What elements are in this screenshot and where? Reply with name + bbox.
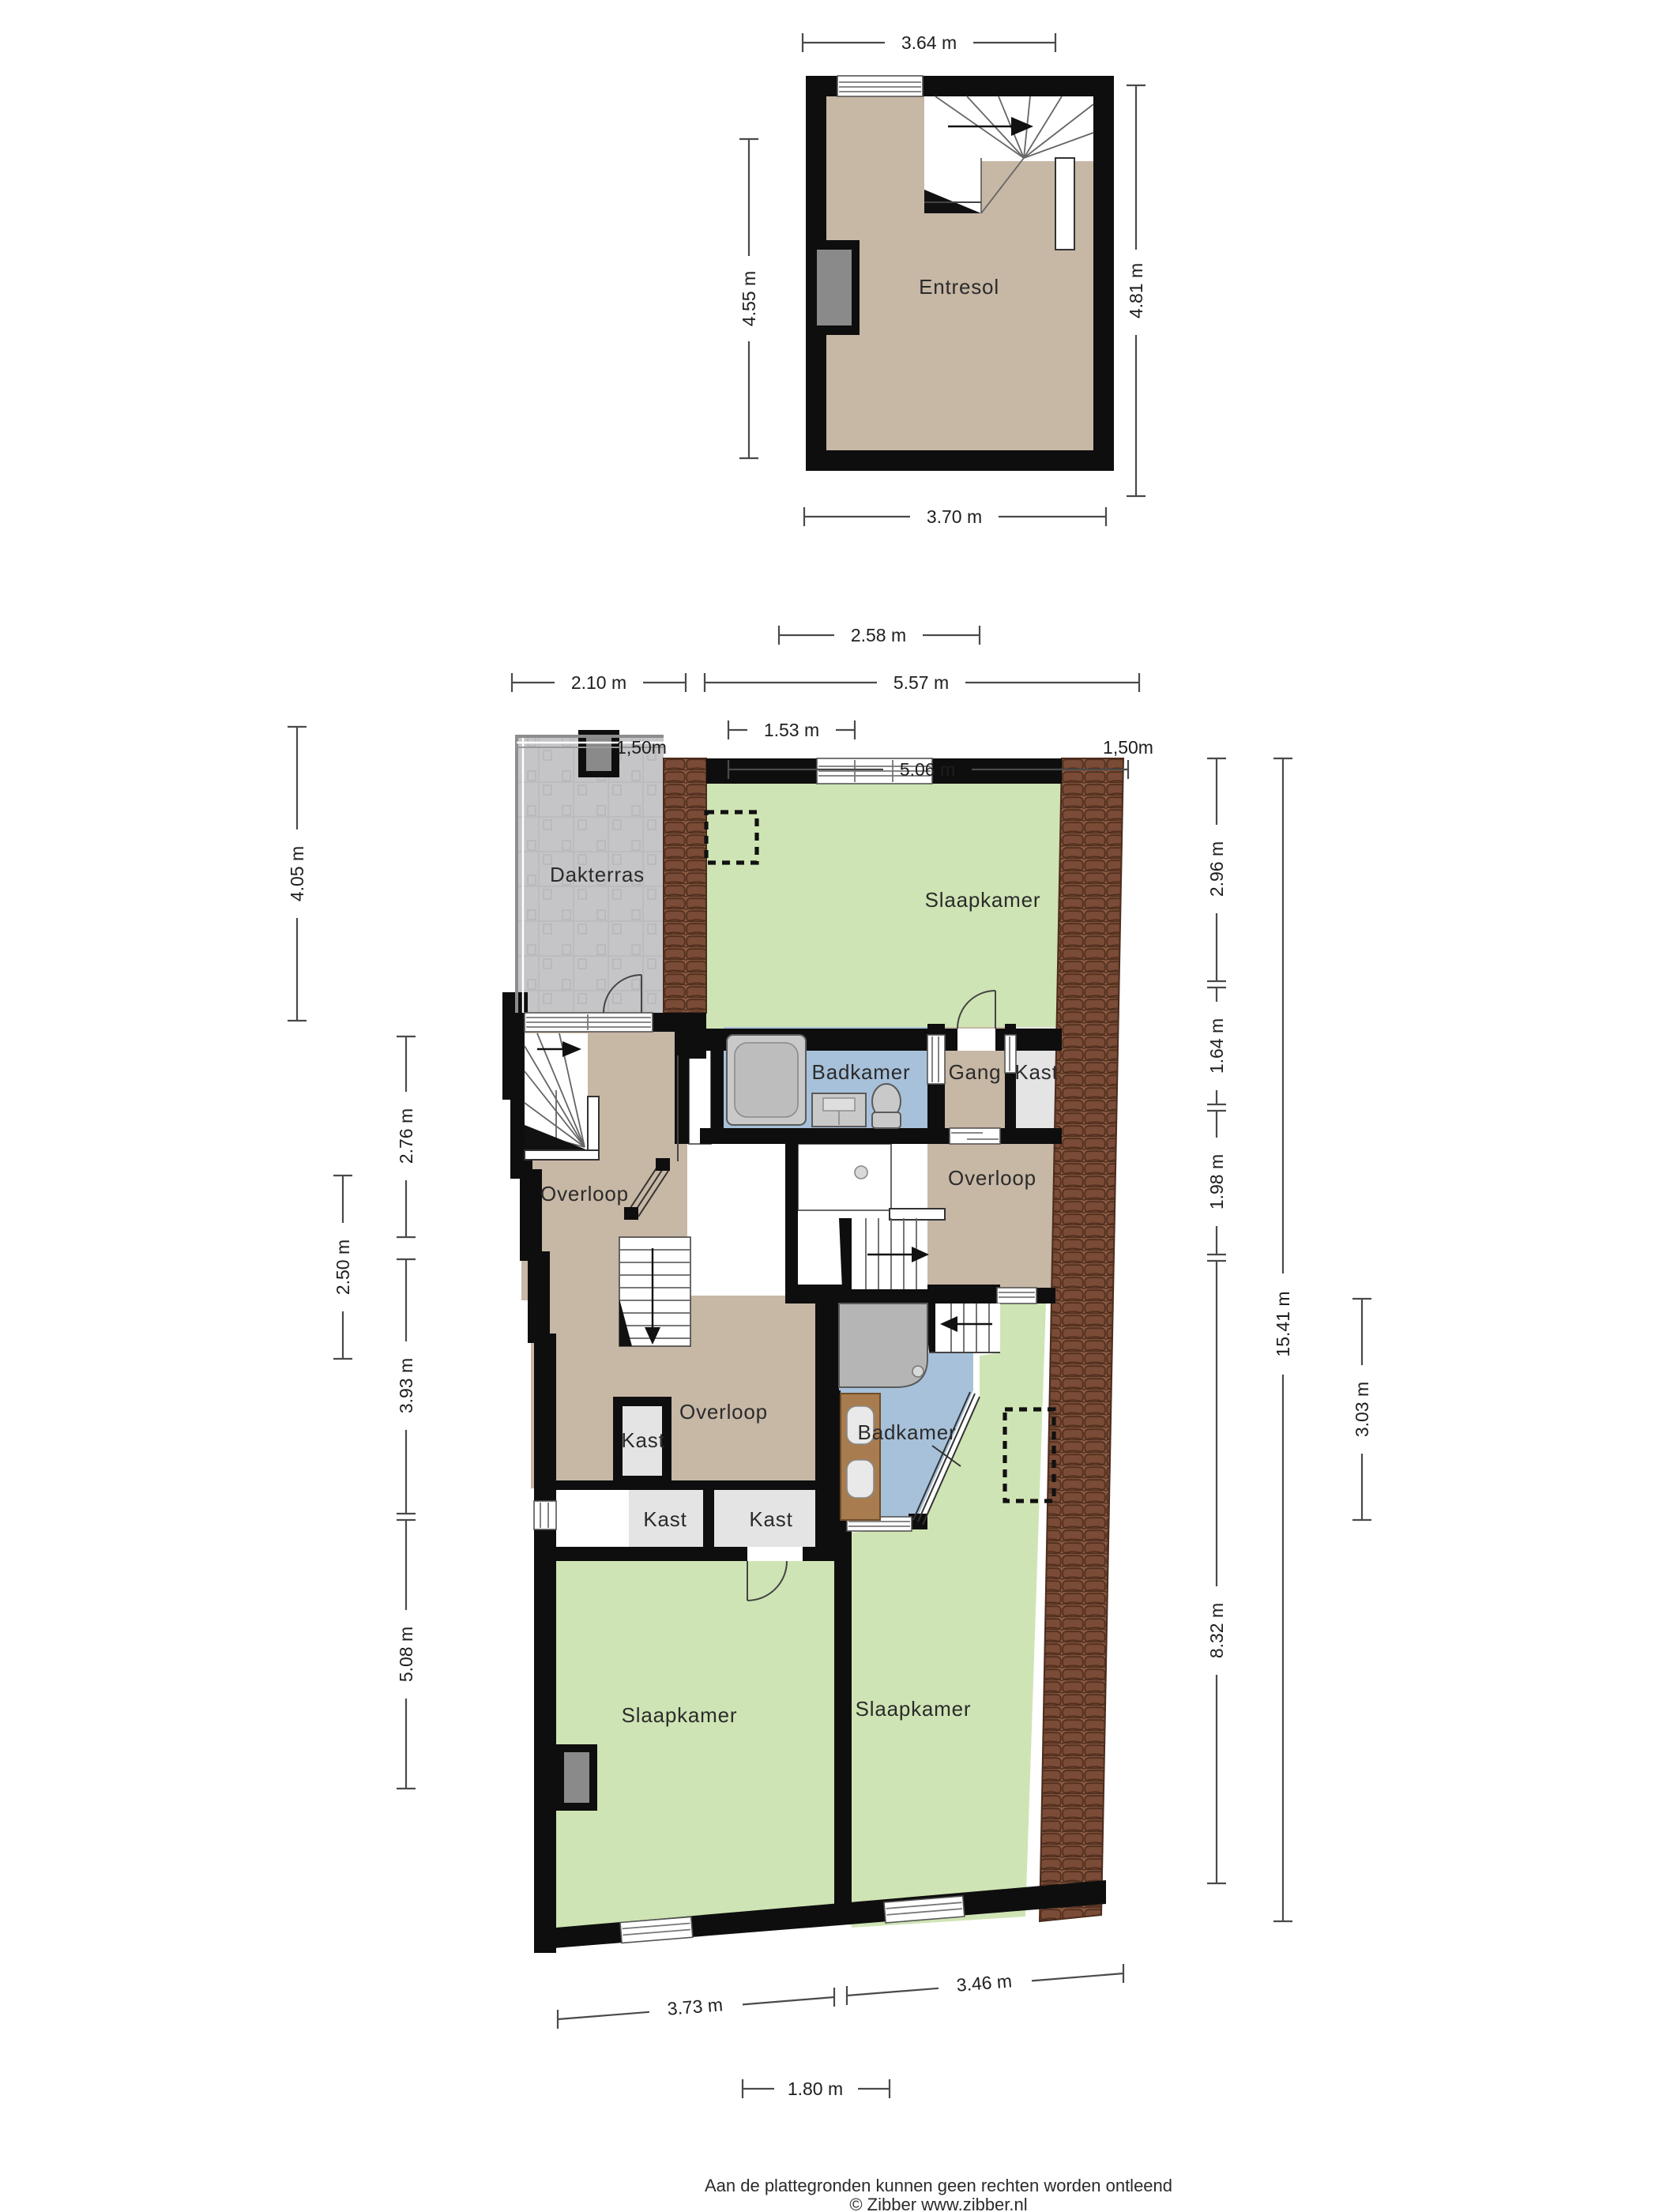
svg-text:8.32 m: 8.32 m bbox=[1206, 1603, 1227, 1658]
room-label-overloop-topleft: Overloop bbox=[540, 1182, 629, 1206]
dim-entresol-left: 4.55 m bbox=[739, 139, 759, 458]
room-label-slaapkamer-right: Slaapkamer bbox=[856, 1697, 972, 1721]
dakterras-overloop-window-icon bbox=[525, 1013, 653, 1032]
dim-276: 2.76 m bbox=[396, 1036, 416, 1237]
room-label-overloop-right: Overloop bbox=[948, 1166, 1036, 1190]
dim-210: 2.10 m bbox=[512, 672, 686, 693]
bathtub-icon bbox=[727, 1035, 806, 1125]
room-label-dakterras: Dakterras bbox=[550, 863, 645, 886]
svg-text:1.53 m: 1.53 m bbox=[764, 720, 819, 740]
overloop-right-window-icon bbox=[997, 1288, 1036, 1303]
dim-1541: 15.41 m bbox=[1273, 758, 1293, 1921]
svg-text:3.70 m: 3.70 m bbox=[927, 506, 982, 527]
floorplan-canvas: Entresol 3.64 m 4.55 m 4.81 m 3.70 m bbox=[0, 0, 1659, 2212]
room-label-badkamer-top: Badkamer bbox=[812, 1060, 911, 1084]
stairs-left-down bbox=[619, 1237, 690, 1346]
stairs-lowerright-down bbox=[929, 1303, 1000, 1352]
svg-text:1.98 m: 1.98 m bbox=[1206, 1154, 1227, 1209]
toilet-icon bbox=[872, 1084, 901, 1128]
svg-text:4.55 m: 4.55 m bbox=[739, 271, 759, 326]
dim-entresol-top: 3.64 m bbox=[803, 32, 1055, 53]
dim-303: 3.03 m bbox=[1352, 1299, 1372, 1520]
room-label-overloop-mid: Overloop bbox=[679, 1400, 768, 1424]
room-label-kast-a: Kast bbox=[643, 1507, 687, 1531]
svg-text:2.50 m: 2.50 m bbox=[333, 1240, 353, 1295]
room-label-badkamer-low: Badkamer bbox=[858, 1420, 957, 1444]
dim-557: 5.57 m bbox=[705, 672, 1139, 693]
dim-832: 8.32 m bbox=[1206, 1261, 1227, 1883]
dim-knee-right: 1,50m bbox=[1103, 737, 1153, 758]
left-wall-window-icon bbox=[534, 1501, 556, 1529]
svg-text:3.64 m: 3.64 m bbox=[901, 32, 957, 53]
svg-text:2.58 m: 2.58 m bbox=[851, 625, 906, 645]
footer-disclaimer: Aan de plattegronden kunnen geen rechten… bbox=[705, 2176, 1172, 2195]
entresol-plan: Entresol 3.64 m 4.55 m 4.81 m 3.70 m bbox=[739, 32, 1146, 527]
room-label-kast-b: Kast bbox=[749, 1507, 792, 1531]
dim-373: 3.73 m bbox=[558, 1988, 834, 2029]
svg-text:2.96 m: 2.96 m bbox=[1206, 841, 1227, 897]
dim-250: 2.50 m bbox=[333, 1176, 353, 1359]
entresol-chimney bbox=[807, 240, 860, 335]
svg-text:2.10 m: 2.10 m bbox=[571, 672, 626, 693]
entresol-top-window-icon bbox=[837, 76, 923, 96]
shower-top-icon bbox=[839, 1303, 927, 1387]
svg-text:5.06 m: 5.06 m bbox=[900, 759, 955, 780]
svg-text:3.93 m: 3.93 m bbox=[396, 1358, 416, 1413]
dim-knee-left: 1,50m bbox=[616, 737, 667, 758]
svg-text:5.08 m: 5.08 m bbox=[396, 1627, 416, 1682]
footer: Aan de plattegronden kunnen geen rechten… bbox=[705, 2176, 1172, 2212]
room-label-entresol: Entresol bbox=[919, 275, 999, 299]
footer-copyright: © Zibber www.zibber.nl bbox=[849, 2195, 1027, 2212]
svg-text:1.80 m: 1.80 m bbox=[788, 2078, 843, 2099]
room-label-kast-right: Kast bbox=[1014, 1060, 1058, 1084]
dim-258: 2.58 m bbox=[779, 625, 980, 645]
room-label-slaapkamer-top: Slaapkamer bbox=[925, 888, 1041, 912]
gang-sliding-door-icon bbox=[950, 1128, 1000, 1144]
svg-text:3.03 m: 3.03 m bbox=[1352, 1382, 1372, 1437]
svg-text:4.81 m: 4.81 m bbox=[1126, 263, 1146, 318]
svg-text:5.57 m: 5.57 m bbox=[893, 672, 949, 693]
dim-508: 5.08 m bbox=[396, 1520, 416, 1789]
svg-text:2.76 m: 2.76 m bbox=[396, 1108, 416, 1164]
dim-180: 1.80 m bbox=[743, 2078, 890, 2099]
svg-text:1.64 m: 1.64 m bbox=[1206, 1018, 1227, 1074]
dim-296: 2.96 m bbox=[1206, 758, 1227, 981]
svg-text:3.73 m: 3.73 m bbox=[667, 1994, 724, 2019]
slaapkamer-left-floor bbox=[556, 1561, 834, 1932]
svg-text:15.41 m: 15.41 m bbox=[1273, 1291, 1293, 1356]
dim-164: 1.64 m bbox=[1206, 987, 1227, 1104]
room-label-slaapkamer-left: Slaapkamer bbox=[622, 1703, 738, 1727]
svg-text:3.46 m: 3.46 m bbox=[956, 1970, 1013, 1996]
dim-405: 4.05 m bbox=[287, 727, 307, 1021]
sink-unit-icon bbox=[812, 1093, 866, 1127]
room-label-gang: Gang bbox=[949, 1060, 1002, 1084]
dim-198: 1.98 m bbox=[1206, 1111, 1227, 1255]
washbasin-void-icon bbox=[855, 1166, 867, 1179]
double-sink-counter-icon bbox=[841, 1394, 880, 1520]
dim-393: 3.93 m bbox=[396, 1259, 416, 1514]
floor-plan: Dakterras Slaapkamer Badkamer Gang Kast … bbox=[287, 625, 1372, 2099]
dim-153: 1.53 m bbox=[728, 720, 855, 740]
dim-346: 3.46 m bbox=[847, 1964, 1123, 2005]
overloop-right-floor bbox=[927, 1138, 1055, 1292]
dim-entresol-bottom: 3.70 m bbox=[804, 506, 1106, 527]
floorplan-page: Entresol 3.64 m 4.55 m 4.81 m 3.70 m bbox=[0, 0, 1659, 2212]
stairs-topleft-winder bbox=[525, 1033, 599, 1160]
badkamer-top-window-icon bbox=[927, 1035, 945, 1084]
dim-entresol-right: 4.81 m bbox=[1126, 85, 1146, 496]
svg-text:4.05 m: 4.05 m bbox=[287, 846, 307, 901]
room-label-kast-small: Kast bbox=[621, 1428, 664, 1452]
roof-slope-brick-left bbox=[664, 758, 706, 1013]
